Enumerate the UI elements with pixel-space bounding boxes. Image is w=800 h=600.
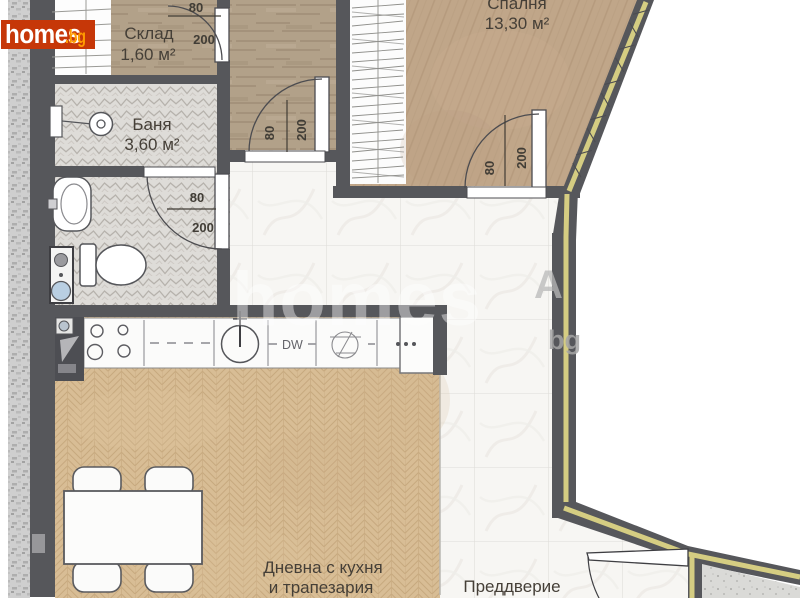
svg-text:bg: bg — [548, 325, 581, 355]
svg-text:200: 200 — [193, 32, 215, 47]
svg-text:и трапезария: и трапезария — [269, 578, 374, 597]
svg-text:А: А — [534, 263, 563, 307]
svg-text:80: 80 — [189, 0, 203, 15]
svg-text:80: 80 — [262, 126, 277, 140]
svg-text:200: 200 — [294, 119, 309, 141]
svg-text:homes: homes — [232, 257, 482, 342]
svg-text:80: 80 — [482, 161, 497, 175]
svg-text:13,30 м²: 13,30 м² — [485, 14, 550, 33]
svg-text:1,60 м²: 1,60 м² — [120, 45, 175, 64]
svg-text:.bg: .bg — [65, 26, 86, 48]
svg-text:Спалня: Спалня — [487, 0, 546, 13]
svg-text:200: 200 — [192, 220, 214, 235]
svg-text:Баня: Баня — [132, 115, 171, 134]
svg-text:80: 80 — [190, 190, 204, 205]
svg-text:Преддверие: Преддверие — [463, 577, 560, 596]
svg-text:Дневна с кухня: Дневна с кухня — [263, 558, 382, 577]
svg-text:3,60 м²: 3,60 м² — [124, 135, 179, 154]
svg-text:Склад: Склад — [124, 24, 173, 43]
svg-text:200: 200 — [514, 147, 529, 169]
